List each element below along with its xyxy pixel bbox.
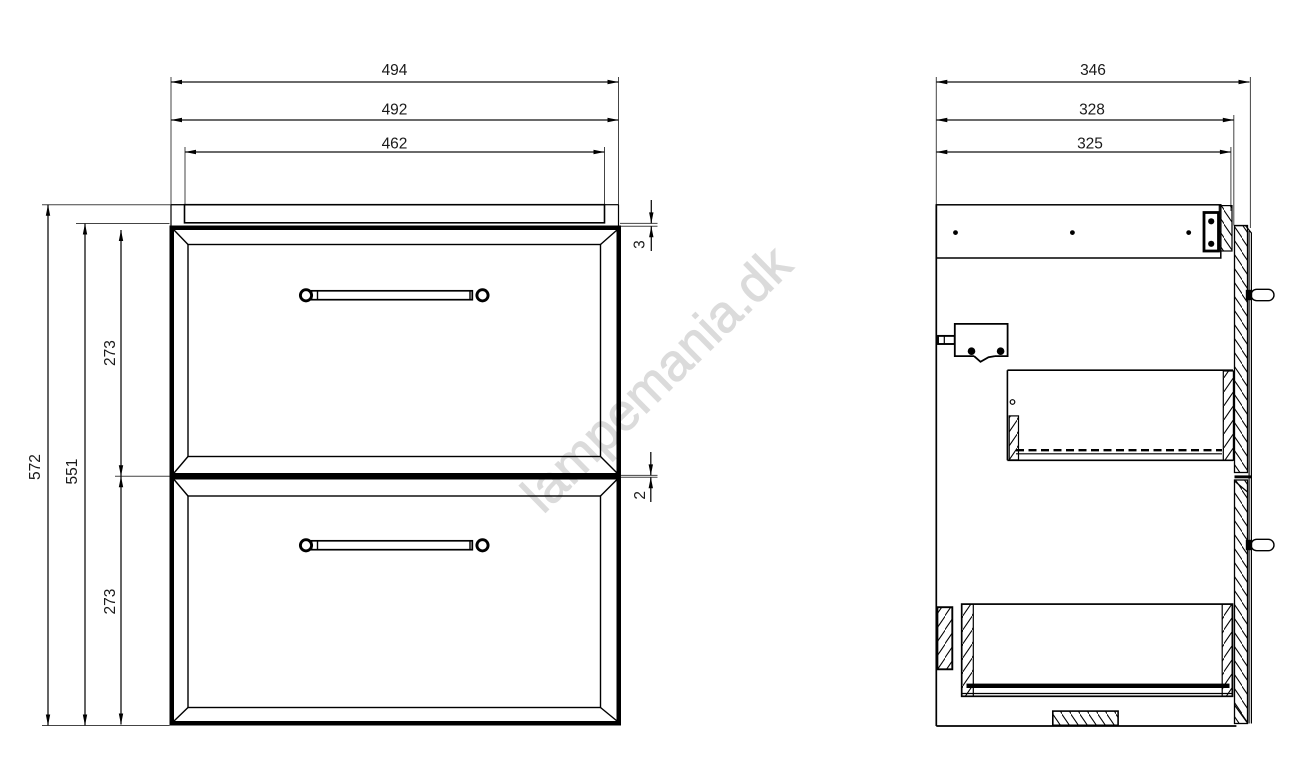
svg-text:273: 273 bbox=[102, 589, 119, 615]
svg-text:346: 346 bbox=[1080, 62, 1106, 79]
svg-text:273: 273 bbox=[102, 340, 119, 366]
svg-text:3: 3 bbox=[632, 240, 649, 249]
svg-text:2: 2 bbox=[632, 491, 649, 500]
svg-text:325: 325 bbox=[1077, 136, 1103, 153]
svg-text:551: 551 bbox=[64, 459, 81, 485]
svg-text:572: 572 bbox=[27, 454, 44, 480]
svg-text:328: 328 bbox=[1079, 102, 1105, 119]
svg-text:492: 492 bbox=[382, 102, 408, 119]
svg-text:462: 462 bbox=[382, 136, 408, 153]
svg-text:494: 494 bbox=[382, 62, 408, 79]
